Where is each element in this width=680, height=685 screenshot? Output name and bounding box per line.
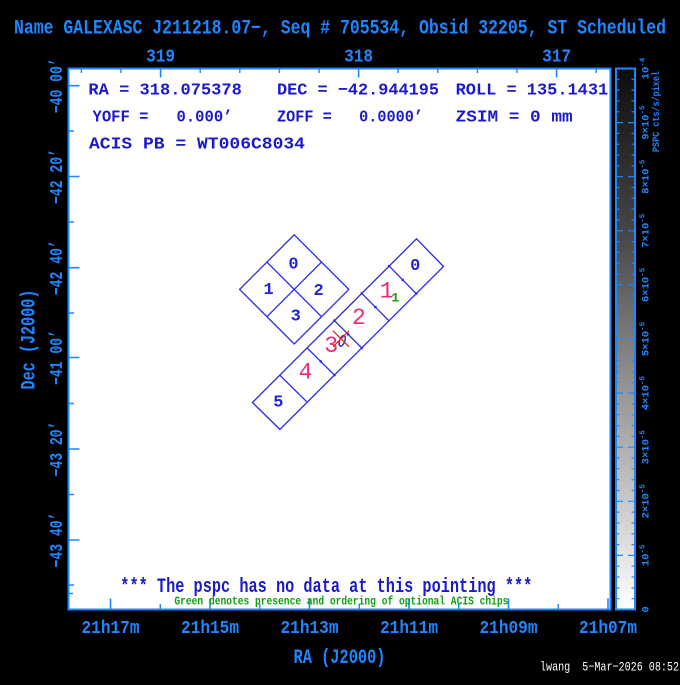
svg-text:3: 3 [291, 308, 301, 327]
svg-text:1: 1 [391, 291, 399, 306]
svg-text:DEC = −42.944195: DEC = −42.944195 [277, 81, 439, 100]
svg-text:317: 317 [542, 48, 571, 68]
svg-text:PSPC cts/s/pixel: PSPC cts/s/pixel [651, 71, 663, 152]
svg-text:2: 2 [313, 282, 323, 301]
svg-text:ZSIM = 0 mm: ZSIM = 0 mm [456, 108, 573, 127]
svg-text:5: 5 [273, 393, 283, 412]
svg-text:0: 0 [410, 257, 420, 276]
svg-text:ACIS PB = WT006C8034: ACIS PB = WT006C8034 [89, 135, 305, 154]
svg-text:ROLL = 135.1431: ROLL = 135.1431 [456, 81, 609, 100]
svg-text:3: 3 [324, 333, 338, 359]
svg-text:lwang 5−Mar−2026 08:52: lwang 5−Mar−2026 08:52 [540, 660, 679, 675]
svg-text:21h13m: 21h13m [281, 619, 339, 639]
svg-text:−41 00’: −41 00’ [48, 330, 68, 385]
svg-text:−43 40’: −43 40’ [48, 513, 68, 568]
svg-text:0: 0 [288, 255, 298, 274]
svg-text:2: 2 [352, 305, 366, 331]
svg-text:4: 4 [299, 360, 313, 386]
svg-text:Dec (J2000): Dec (J2000) [19, 290, 42, 390]
svg-text:319: 319 [146, 48, 175, 68]
svg-text:318: 318 [344, 48, 373, 68]
svg-text:ZOFF = 0.0000’: ZOFF = 0.0000’ [277, 108, 423, 127]
svg-text:0: 0 [641, 606, 653, 612]
svg-text:21h09m: 21h09m [480, 619, 538, 639]
svg-text:−42 40’: −42 40’ [48, 240, 68, 295]
svg-text:RA (J2000): RA (J2000) [294, 647, 386, 670]
svg-text:−43 20’: −43 20’ [48, 422, 68, 477]
svg-text:21h17m: 21h17m [82, 619, 140, 639]
svg-text:1: 1 [263, 281, 273, 300]
svg-text:21h11m: 21h11m [380, 619, 438, 639]
svg-text:YOFF = 0.000’: YOFF = 0.000’ [93, 108, 233, 127]
svg-text:Green denotes presence and ord: Green denotes presence and ordering of o… [174, 596, 508, 609]
svg-text:21h07m: 21h07m [579, 619, 637, 639]
svg-text:RA = 318.075378: RA = 318.075378 [88, 81, 242, 100]
svg-text:21h15m: 21h15m [181, 619, 239, 639]
svg-text:Name GALEXASC J211218.07−, Seq: Name GALEXASC J211218.07−, Seq # 705534,… [14, 18, 666, 41]
svg-text:−40 00’: −40 00’ [48, 58, 68, 113]
svg-text:−42 20’: −42 20’ [48, 149, 68, 204]
